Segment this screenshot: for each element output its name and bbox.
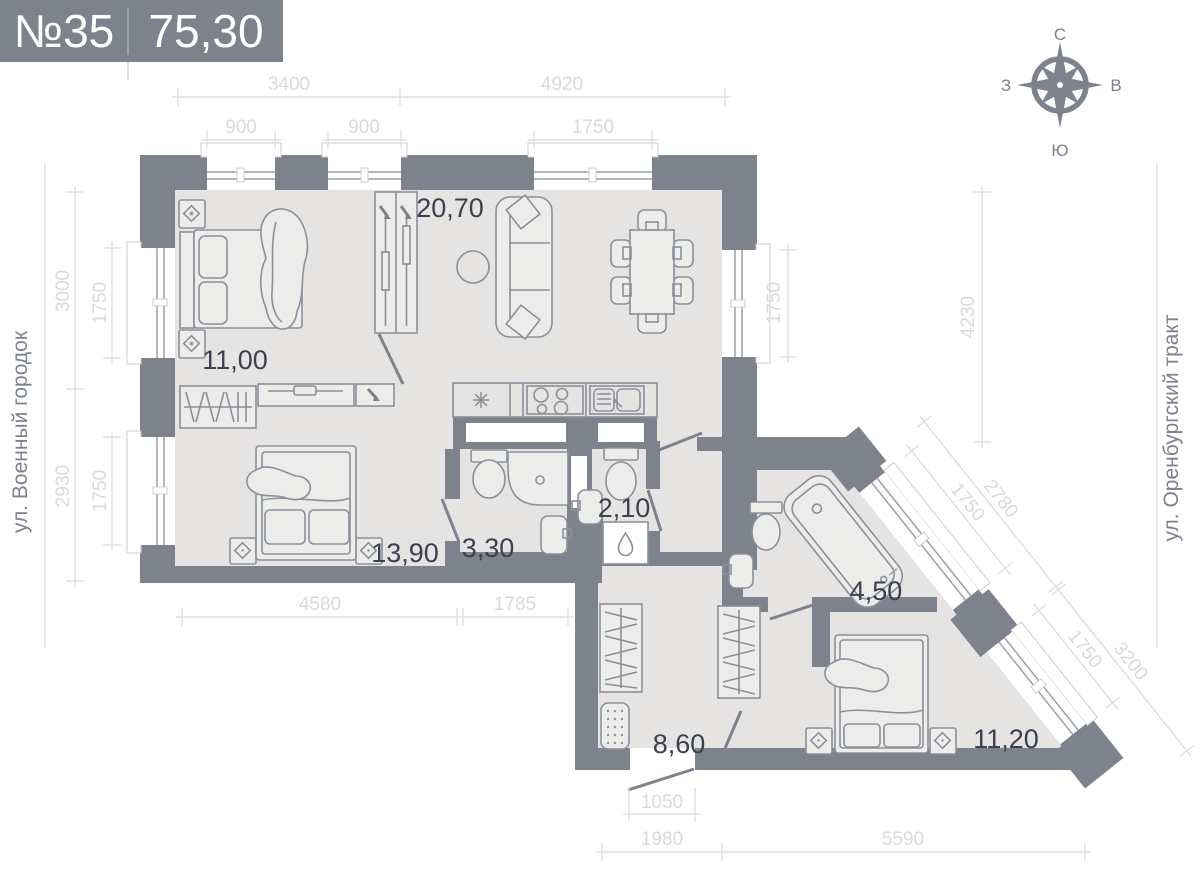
compass-south-label: Ю bbox=[1051, 141, 1068, 160]
entrance-door bbox=[628, 769, 694, 790]
apartment-area: 75,30 bbox=[148, 5, 263, 57]
wall-bottom-west-of-door bbox=[575, 748, 630, 770]
toilet-icon bbox=[750, 502, 782, 550]
vent-shaft bbox=[598, 423, 644, 442]
wall-wc-east-upper bbox=[646, 441, 660, 489]
room-label-bathroom2: 4,50 bbox=[850, 576, 903, 606]
wall-corridor-left bbox=[575, 566, 598, 770]
header: №35 75,30 bbox=[0, 0, 283, 80]
dim-window-3: 1750 bbox=[572, 117, 614, 138]
dim-entrance: 1050 bbox=[641, 792, 683, 813]
dim-left-window-1: 1750 bbox=[90, 282, 111, 324]
apartment-number: №35 bbox=[14, 5, 115, 57]
washbasin-icon bbox=[541, 516, 571, 554]
compass-rose-icon: С В Ю З bbox=[1001, 25, 1122, 160]
dim-bottom-room-2: 1785 bbox=[494, 594, 536, 615]
dim-window-2: 900 bbox=[348, 117, 380, 138]
dim-bottom-room-1: 4580 bbox=[299, 594, 341, 615]
fridge-icon bbox=[473, 392, 489, 408]
wall-bathroom1-west-upper bbox=[445, 449, 460, 499]
washing-machine-icon bbox=[603, 522, 648, 564]
room-label-bedroom1: 11,00 bbox=[202, 345, 268, 375]
wardrobe-icon bbox=[375, 192, 417, 333]
dim-bottom-2: 5590 bbox=[882, 829, 924, 850]
room-label-hallway: 8,60 bbox=[653, 729, 706, 759]
compass-east-label: В bbox=[1110, 76, 1121, 95]
dim-top-1: 3400 bbox=[268, 74, 310, 95]
dim-left-window-2: 1750 bbox=[90, 470, 111, 512]
floor-plan-page: 1750 2780 1750 3200 bbox=[0, 0, 1200, 884]
wall-bedroom3-west bbox=[812, 597, 830, 667]
toilet-icon bbox=[471, 450, 507, 498]
room-label-bedroom3: 11,20 bbox=[973, 724, 1039, 754]
tv-dresser-icon bbox=[258, 384, 354, 406]
open-closet-icon bbox=[718, 606, 760, 698]
shower-icon bbox=[508, 452, 568, 505]
room-label-bathroom1: 3,30 bbox=[462, 533, 515, 563]
sofa-icon bbox=[496, 195, 552, 339]
room-label-wc: 2,10 bbox=[598, 493, 651, 523]
dim-bottom-1: 1980 bbox=[641, 829, 683, 850]
street-label-right: ул. Оренбургский тракт bbox=[1160, 314, 1183, 541]
dim-left-2: 2930 bbox=[53, 465, 74, 507]
vent-shaft bbox=[466, 423, 566, 442]
room-label-bedroom2: 13,90 bbox=[371, 538, 439, 568]
dim-right-outer: 4230 bbox=[958, 296, 979, 338]
dim-left-1: 3000 bbox=[53, 270, 74, 312]
open-closet-icon bbox=[600, 604, 642, 692]
room-label-living: 20,70 bbox=[416, 193, 484, 223]
dim-right-window: 1750 bbox=[764, 282, 785, 324]
open-closet-icon bbox=[180, 386, 256, 428]
wall-bottom-left-section bbox=[140, 566, 602, 583]
street-label-left: ул. Военный городок bbox=[9, 330, 32, 533]
floor-plan-canvas: 1750 2780 1750 3200 bbox=[0, 0, 1200, 884]
shoe-cabinet-icon bbox=[601, 703, 629, 749]
cabinet-icon bbox=[356, 384, 394, 406]
dim-window-1: 900 bbox=[225, 117, 257, 138]
compass-north-label: С bbox=[1054, 25, 1066, 44]
compass-west-label: З bbox=[1001, 76, 1011, 95]
dim-top-2: 4920 bbox=[541, 74, 583, 95]
wall-bathroom2-west bbox=[722, 470, 743, 612]
